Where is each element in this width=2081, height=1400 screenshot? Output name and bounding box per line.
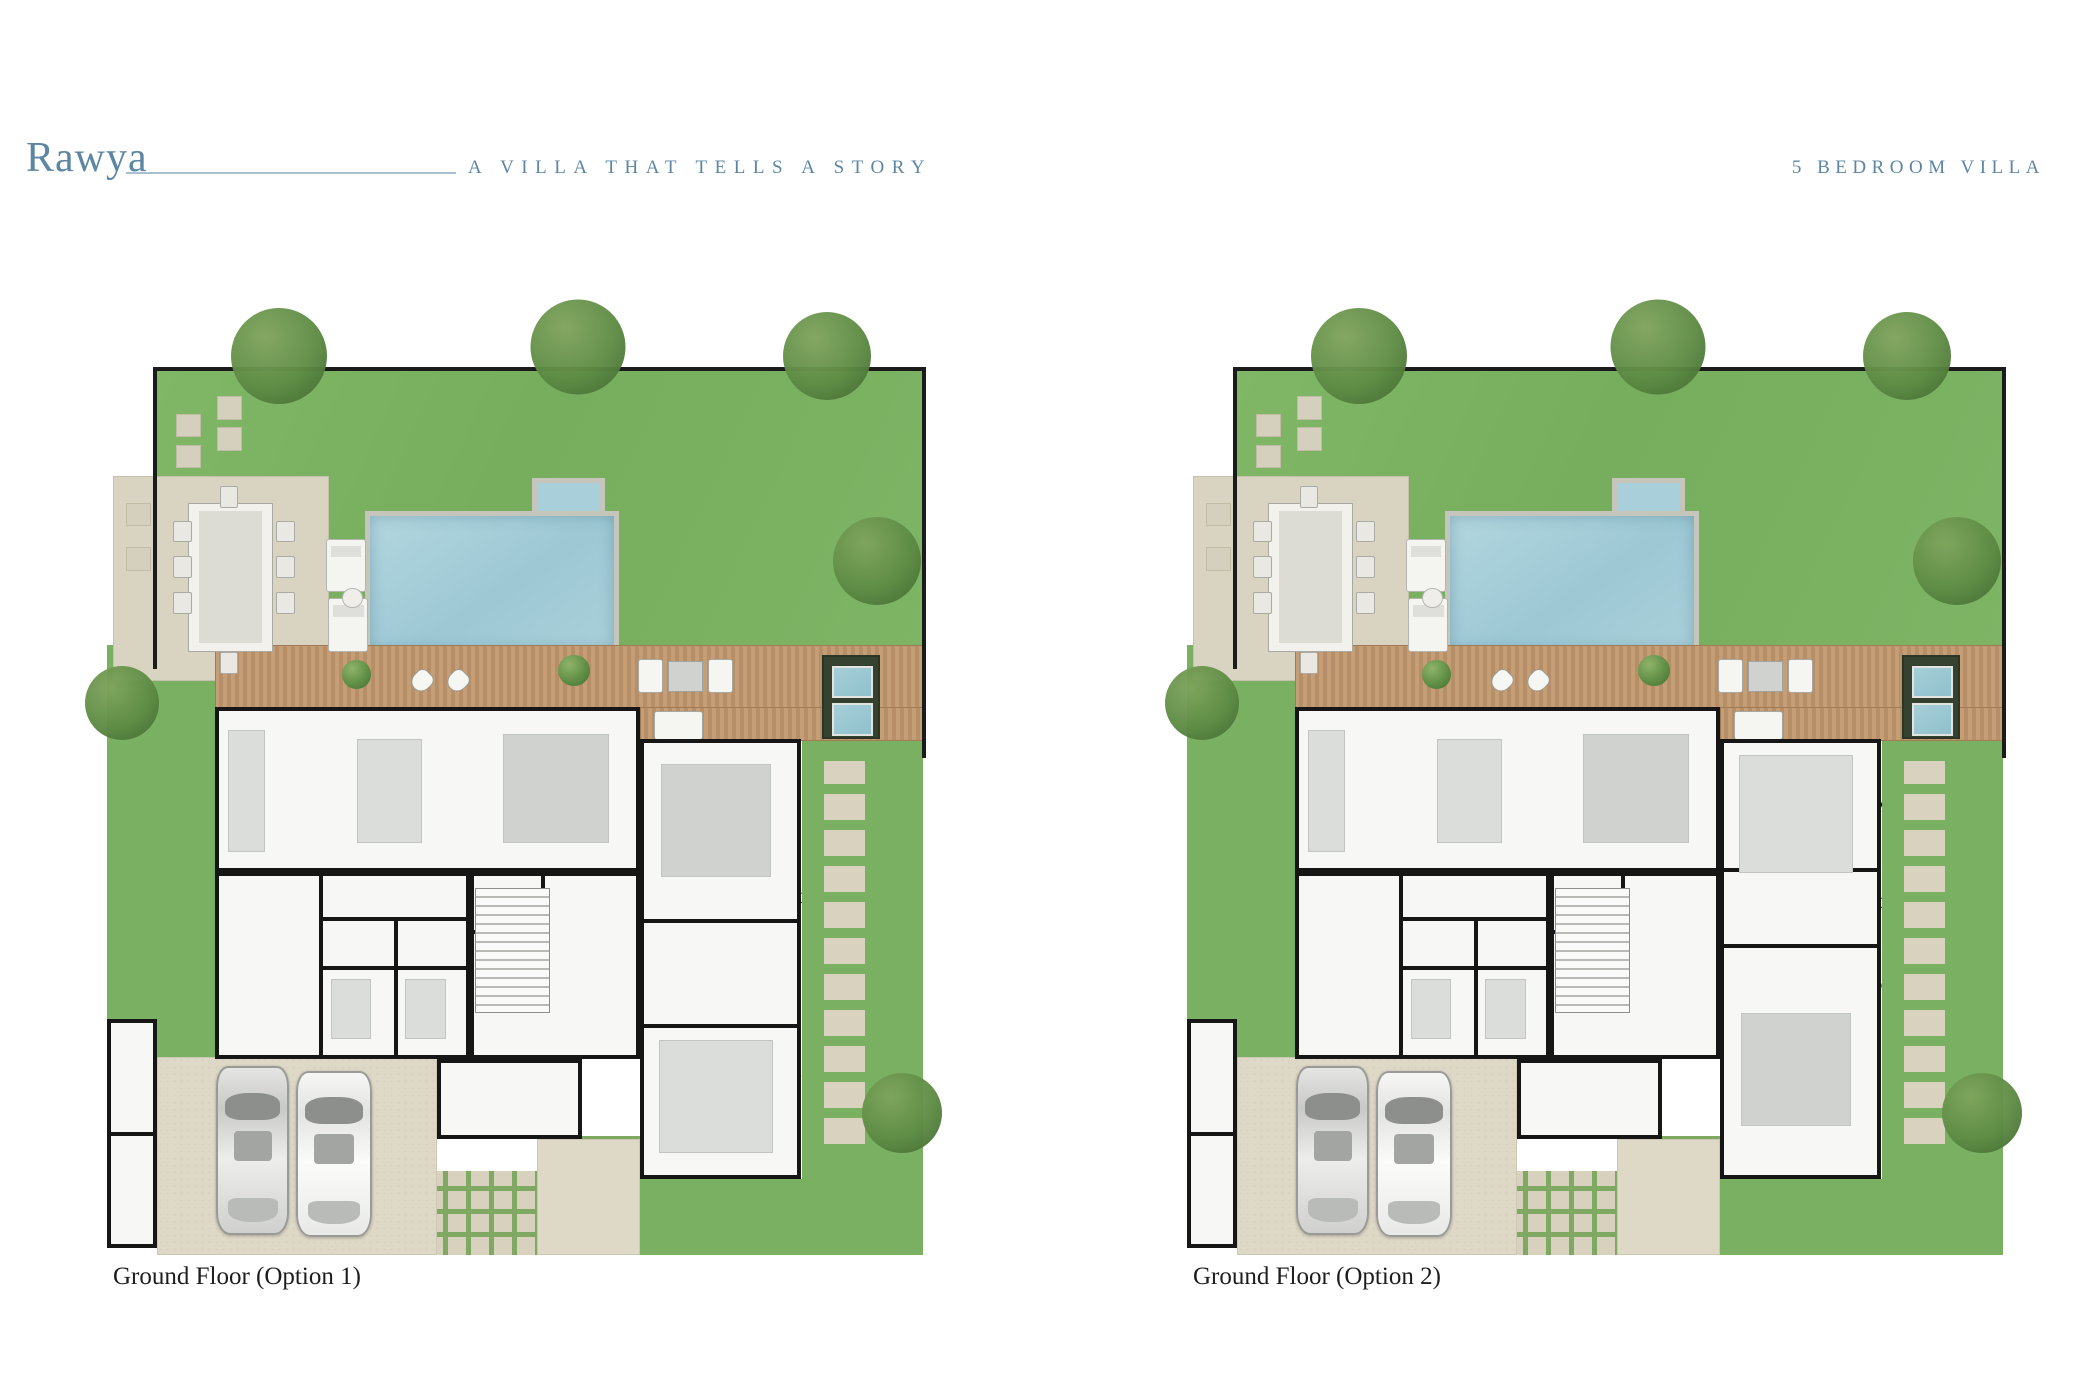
deck-potted-tree	[1638, 655, 1670, 686]
bed	[1739, 755, 1853, 873]
tree-icon	[85, 666, 159, 740]
family-sofa	[661, 764, 771, 877]
deck-coffee-table	[668, 661, 703, 691]
tree-icon	[182, 627, 228, 673]
outdoor-chair	[173, 592, 192, 614]
tree-icon	[1945, 853, 2019, 927]
bed	[659, 1040, 773, 1153]
villa-type-label: 5 BEDROOM VILLA	[1792, 157, 2045, 179]
tree-icon	[831, 737, 923, 829]
outdoor-chair	[1356, 521, 1375, 543]
tree-icon	[859, 419, 929, 489]
car-icon	[1296, 1066, 1369, 1235]
lounger-side-table	[1422, 588, 1442, 608]
floor-plan-option-1: KITCHEN4.3 x 4.9mDINING4.1 x 4.9mLIVING5…	[105, 365, 935, 1255]
water-feature-basin	[1912, 666, 1953, 698]
tree-icon	[1199, 942, 1255, 998]
car-rear	[228, 1198, 278, 1222]
header-divider	[126, 172, 456, 174]
tree-icon	[1686, 326, 1764, 404]
deck-armchair	[1718, 659, 1743, 693]
outdoor-chair	[220, 486, 239, 508]
deck-potted-tree	[1422, 660, 1450, 688]
car-wshield	[225, 1093, 281, 1120]
staircase	[1555, 888, 1630, 1013]
floor-plan-figure-option-2: KITCHEN4.3 x 4.9mDINING4.1 x 4.9mLIVING5…	[1185, 365, 2015, 1305]
tree-icon	[114, 777, 180, 843]
outdoor-chair	[173, 521, 192, 543]
outdoor-chair	[1253, 521, 1272, 543]
floor-plan-option-2: KITCHEN4.3 x 4.9mDINING4.1 x 4.9mLIVING5…	[1185, 365, 2015, 1255]
car-rear	[1388, 1201, 1440, 1224]
wall	[1187, 1132, 1238, 1136]
outdoor-chair	[1253, 556, 1272, 578]
tree-icon	[1380, 611, 1422, 653]
kitchen-island	[1308, 730, 1345, 852]
plan-caption-option-2: Ground Floor (Option 2)	[1193, 1263, 1441, 1291]
dining-table	[357, 739, 422, 843]
wall	[1399, 966, 1550, 970]
outdoor-chair	[276, 521, 295, 543]
driver-bed	[1485, 979, 1525, 1039]
wall	[640, 919, 800, 923]
outdoor-chair	[1356, 556, 1375, 578]
wall	[107, 1132, 158, 1136]
swimming-pool	[1445, 511, 1699, 655]
deck-armchair	[708, 659, 733, 693]
tree-icon	[1178, 475, 1242, 539]
car-roofwin	[234, 1131, 272, 1161]
car-rear	[308, 1201, 360, 1224]
tree-icon	[1717, 1196, 1781, 1260]
outdoor-chair	[276, 592, 295, 614]
tree-icon	[833, 517, 921, 605]
deck-coffee-table	[1748, 661, 1783, 691]
tree-icon	[1198, 567, 1256, 625]
car-icon	[1376, 1071, 1452, 1237]
deck-armchair	[1788, 659, 1813, 693]
wall	[319, 917, 470, 921]
maid-bed	[331, 979, 371, 1039]
tree-icon	[1863, 312, 1951, 400]
stepping-stone	[1297, 427, 1322, 450]
water-feature-basin	[832, 666, 873, 698]
tree-icon	[606, 326, 684, 404]
store-block	[1517, 1059, 1662, 1139]
water-feature-basin	[1912, 703, 1953, 735]
outdoor-chair	[276, 556, 295, 578]
floor-plan-figure-option-1: KITCHEN4.3 x 4.9mDINING4.1 x 4.9mLIVING5…	[105, 365, 935, 1305]
sun-lounger	[326, 539, 366, 593]
stepping-stone	[217, 427, 242, 450]
tree-icon	[118, 567, 176, 625]
lounger-side-table	[342, 588, 362, 608]
tree-icon	[1165, 666, 1239, 740]
deck-sofa	[654, 711, 702, 740]
car-wshield	[1305, 1093, 1361, 1120]
car-wshield	[1385, 1097, 1443, 1124]
outdoor-chair	[1356, 592, 1375, 614]
car-roofwin	[1314, 1131, 1352, 1161]
tree-icon	[1262, 627, 1308, 673]
car-icon	[296, 1071, 372, 1237]
wall	[394, 917, 398, 1059]
water-feature-basin	[832, 703, 873, 735]
outdoor-chair	[173, 556, 192, 578]
dining-table	[1437, 739, 1502, 843]
outdoor-chair	[1300, 486, 1319, 508]
brand-logo: Rawya	[26, 134, 148, 182]
outdoor-chair	[1253, 592, 1272, 614]
tree-icon	[98, 475, 162, 539]
tree-icon	[637, 1196, 701, 1260]
brochure-page: Rawya A VILLA THAT TELLS A STORY 5 BEDRO…	[0, 0, 2081, 1400]
stepping-stone	[176, 445, 201, 468]
entry-path	[537, 1139, 641, 1255]
tree-icon	[1939, 419, 2009, 489]
tagline-text: A VILLA THAT TELLS A STORY	[468, 157, 932, 179]
tree-icon	[865, 853, 939, 927]
car-roofwin	[314, 1134, 354, 1164]
tree-icon	[862, 1073, 942, 1153]
tree-icon	[1194, 777, 1260, 843]
tree-icon	[300, 611, 342, 653]
stepping-stone	[176, 414, 201, 437]
swimming-pool	[365, 511, 619, 655]
store-block	[437, 1059, 582, 1139]
tree-icon	[783, 312, 871, 400]
entry-path	[1617, 1139, 1721, 1255]
deck-potted-tree	[558, 655, 590, 686]
kitchen-island	[228, 730, 265, 852]
tree-icon	[231, 308, 327, 404]
stepping-stone	[1256, 414, 1281, 437]
wall	[1474, 917, 1478, 1059]
tree-icon	[1911, 737, 2003, 829]
staircase	[475, 888, 550, 1013]
deck-sofa	[1734, 711, 1782, 740]
plan-caption-option-1: Ground Floor (Option 1)	[113, 1263, 361, 1291]
boundary-wall-right	[922, 367, 926, 759]
wall	[1399, 917, 1550, 921]
tree-icon	[1311, 308, 1407, 404]
living-sofa-set	[1583, 734, 1689, 843]
tree-icon	[1942, 1073, 2022, 1153]
tree-icon	[1913, 517, 2001, 605]
car-wshield	[305, 1097, 363, 1124]
living-sofa-set	[503, 734, 609, 843]
driver-bed	[405, 979, 445, 1039]
boundary-wall-right	[2002, 367, 2006, 759]
tree-icon	[92, 869, 152, 929]
maid-bed	[1411, 979, 1451, 1039]
wall	[1720, 944, 1880, 948]
deck-armchair	[638, 659, 663, 693]
wall	[319, 966, 470, 970]
car-rear	[1308, 1198, 1358, 1222]
car-roofwin	[1394, 1134, 1434, 1164]
tree-icon	[1172, 869, 1232, 929]
sun-lounger	[1406, 539, 1446, 593]
car-icon	[216, 1066, 289, 1235]
wall	[640, 1024, 800, 1028]
family-sofa	[1741, 1013, 1851, 1126]
deck-potted-tree	[342, 660, 370, 688]
tree-icon	[119, 942, 175, 998]
stepping-stone	[1256, 445, 1281, 468]
